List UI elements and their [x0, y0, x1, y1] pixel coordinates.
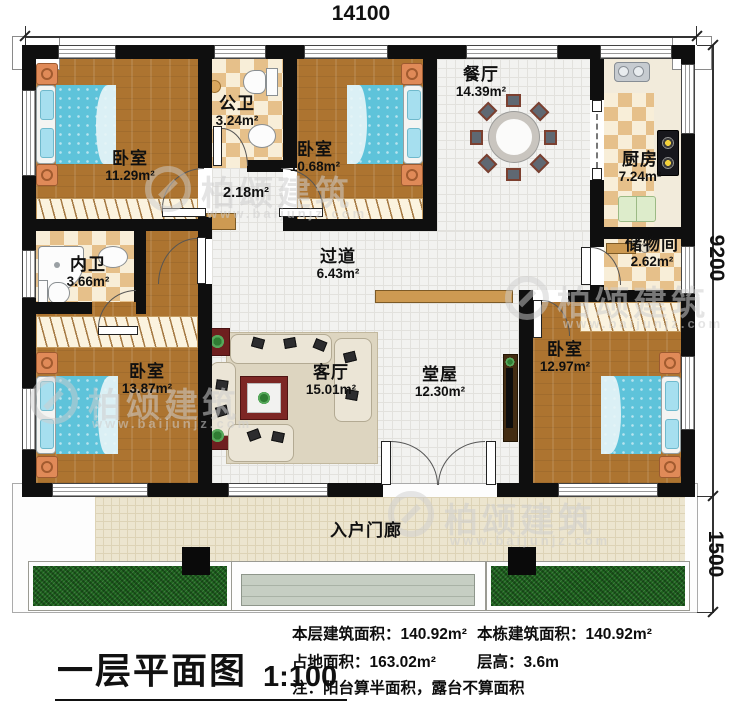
dimension-width-total: 14100: [296, 2, 426, 26]
porch-pillar-right: [508, 547, 536, 575]
room-label-bedroom-4: 卧室 12.97m²: [510, 341, 620, 375]
window: [681, 356, 695, 430]
dimension-line-top: [25, 36, 697, 38]
wall-interior: [568, 290, 695, 302]
room-area: 11.29m²: [75, 169, 185, 184]
window: [228, 483, 328, 497]
stat-label: 占地面积：: [292, 654, 370, 671]
toilet-bowl: [243, 70, 266, 94]
dimension-depth-porch: 1500: [705, 514, 727, 594]
plant: [210, 428, 225, 443]
window: [558, 483, 658, 497]
throw-pillow: [215, 379, 228, 391]
floor-plan-canvas: 柏颂建筑 www.baijunjz.com 柏颂建筑 www.baijunjz.…: [0, 0, 750, 703]
wall-interior: [136, 302, 146, 314]
room-label-corridor: 2.18m²: [191, 186, 301, 202]
room-area: 3.24m²: [182, 114, 292, 129]
room-name: 公卫: [182, 95, 292, 114]
room-label-bedroom-3: 卧室 13.87m²: [92, 363, 202, 397]
wall-interior: [283, 219, 437, 231]
wall-interior: [22, 302, 92, 314]
kitchen-rack-divider: [636, 196, 637, 222]
door-leaf-bedroom-2: [279, 208, 323, 217]
door-leaf-public-bathroom: [213, 126, 222, 166]
nightstand: [401, 63, 423, 85]
bed-pillow: [40, 419, 54, 449]
sink-basin: [618, 66, 629, 77]
nightstand: [36, 164, 58, 186]
dimension-depth-main: 9200: [704, 213, 728, 303]
nightstand: [659, 352, 681, 374]
room-name: 客厅: [276, 364, 386, 383]
room-label-bedroom-1: 卧室 11.29m²: [75, 150, 185, 184]
stat-building-area: 本栋建筑面积：140.92m²: [477, 622, 652, 644]
room-name: 卧室: [510, 341, 620, 360]
window: [52, 483, 148, 497]
stat-land-area: 占地面积：163.02m²: [292, 650, 436, 672]
room-area: 12.97m²: [510, 360, 620, 375]
kitchen-rack: [618, 196, 656, 222]
window: [304, 45, 388, 59]
room-label-storage: 储物间 2.62m²: [597, 236, 707, 270]
entry-steps: [230, 561, 486, 611]
dining-chair: [544, 130, 557, 145]
stat-note: 注：阳台算半面积，露台不算面积: [292, 676, 525, 698]
bed-pillow: [40, 90, 54, 120]
bed-pillow: [40, 381, 54, 411]
bed-pillow: [40, 128, 54, 158]
window: [214, 45, 266, 59]
room-name: 入户门廊: [306, 522, 426, 541]
plant: [257, 391, 271, 405]
window: [22, 90, 36, 176]
door-leaf-storage: [581, 247, 591, 285]
nightstand: [36, 456, 58, 478]
room-area: 2.62m²: [597, 255, 707, 270]
sink-basin: [633, 66, 644, 77]
room-label-hallway: 过道 6.43m²: [283, 248, 393, 282]
bed-pillow: [407, 90, 421, 120]
hallway-sideboard: [375, 290, 513, 303]
tv: [506, 368, 513, 428]
room-name: 卧室: [92, 363, 202, 382]
door-leaf-bedroom-1: [162, 208, 206, 217]
stat-value: 140.92m²: [401, 626, 467, 643]
room-area: 2.18m²: [191, 186, 301, 202]
entry-door-leaf-right: [486, 441, 496, 485]
room-name: 内卫: [33, 256, 143, 275]
toilet-tank: [266, 68, 278, 96]
dining-chair: [470, 130, 483, 145]
room-name: 过道: [283, 248, 393, 267]
room-area: 3.66m²: [33, 275, 143, 290]
room-name: 储物间: [597, 236, 707, 255]
entry-steps-treads: [241, 574, 475, 606]
folding-door-panel: [592, 100, 602, 112]
bed-pillow: [665, 419, 679, 449]
room-label-dining-room: 餐厅 14.39m²: [426, 66, 536, 100]
window: [466, 45, 558, 59]
room-label-entry-porch: 入户门廊: [306, 522, 426, 541]
nightstand: [659, 456, 681, 478]
room-label-living-room: 客厅 15.01m²: [276, 364, 386, 398]
room-label-bedroom-2: 卧室 10.68m²: [260, 141, 370, 175]
window: [600, 45, 672, 59]
dining-chair: [506, 168, 521, 181]
room-label-main-hall: 堂屋 12.30m²: [385, 366, 495, 400]
stat-label: 层高：: [477, 654, 524, 671]
stat-floor-height: 层高：3.6m: [477, 650, 559, 672]
stat-value: 140.92m²: [586, 626, 652, 643]
window: [681, 64, 695, 134]
stat-label: 本栋建筑面积：: [477, 626, 586, 643]
bed-pillow: [407, 128, 421, 158]
sofa-bottom: [228, 424, 294, 462]
room-area: 15.01m²: [276, 383, 386, 398]
window: [58, 45, 116, 59]
nightstand: [401, 164, 423, 186]
wall-interior: [519, 302, 533, 483]
room-area: 10.68m²: [260, 160, 370, 175]
room-name: 厨房: [585, 151, 695, 170]
nightstand: [36, 63, 58, 85]
entry-door-leaf-left: [381, 441, 391, 485]
stat-value: 163.02m²: [370, 654, 436, 671]
door-leaf-bedroom-4: [533, 300, 542, 338]
floor-hallway-east: [519, 231, 590, 290]
bed-pillow: [665, 381, 679, 411]
nightstand: [36, 352, 58, 374]
room-label-public-bathroom: 公卫 3.24m²: [182, 95, 292, 129]
plan-title: 一层平面图: [57, 642, 247, 694]
room-area: 14.39m²: [426, 85, 536, 100]
plant: [210, 334, 225, 349]
throw-pillow: [283, 337, 297, 349]
stat-value: 3.6m: [524, 654, 559, 671]
dining-table: [489, 112, 539, 162]
room-area: 12.30m²: [385, 385, 495, 400]
stat-floor-area: 本层建筑面积：140.92m²: [292, 622, 467, 644]
wall-interior: [198, 217, 212, 231]
room-label-ensuite: 内卫 3.66m²: [33, 256, 143, 290]
room-area: 6.43m²: [283, 267, 393, 282]
room-label-kitchen: 厨房 7.24m²: [585, 151, 695, 185]
stat-note-text: 注：阳台算半面积，露台不算面积: [292, 680, 525, 697]
room-name: 卧室: [260, 141, 370, 160]
porch-pillar-left: [182, 547, 210, 575]
room-area: 7.24m²: [585, 170, 695, 185]
window: [22, 388, 36, 450]
throw-pillow: [271, 431, 285, 443]
closet-bedroom-4: [580, 302, 681, 332]
room-area: 13.87m²: [92, 382, 202, 397]
wall-interior: [519, 290, 533, 302]
wall-interior: [22, 219, 198, 231]
door-leaf-bedroom-3: [197, 237, 206, 284]
room-name: 餐厅: [426, 66, 536, 85]
stat-label: 本层建筑面积：: [292, 626, 401, 643]
stove-burner: [661, 136, 675, 150]
room-name: 堂屋: [385, 366, 495, 385]
room-name: 卧室: [75, 150, 185, 169]
